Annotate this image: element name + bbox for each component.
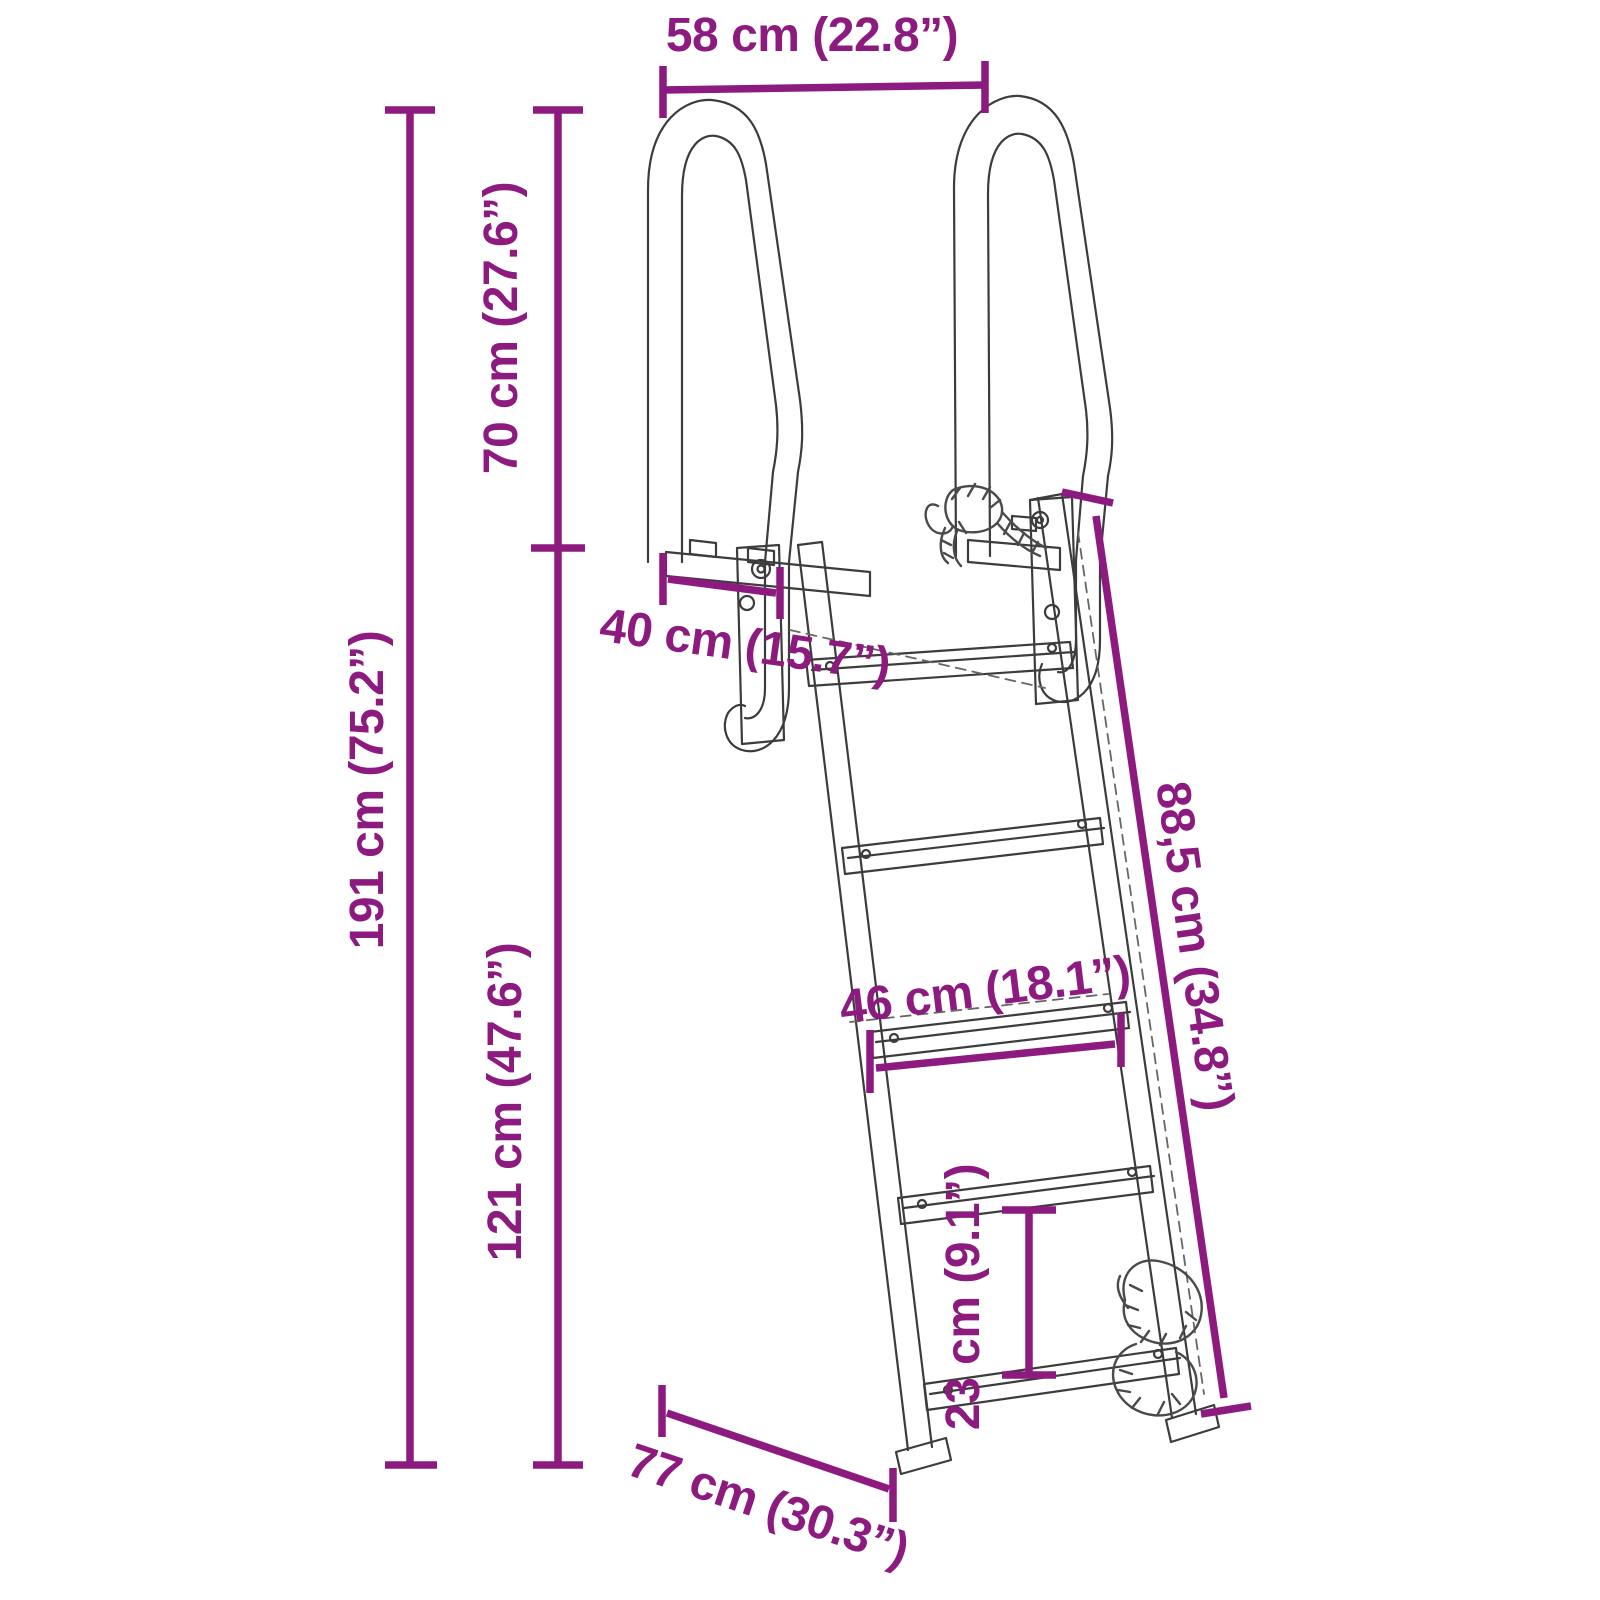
dim-line-handrail-and-lower — [531, 110, 585, 1465]
dim-line-top-width — [663, 61, 985, 118]
dim-label-total-height: 191 cm (75.2”) — [344, 631, 392, 950]
ladder-line-drawing — [0, 0, 1600, 1600]
top-rope — [926, 484, 1046, 566]
bottom-rope — [1113, 1260, 1202, 1415]
dim-label-top-width: 58 cm (22.8”) — [666, 12, 958, 60]
dim-label-step-spacing: 23 cm (9.1”) — [940, 1164, 988, 1430]
dim-label-lower-height: 121 cm (47.6”) — [482, 943, 530, 1262]
left-top-bracket — [666, 540, 870, 596]
step-2 — [842, 818, 1104, 874]
dimension-diagram-canvas: 58 cm (22.8”) 70 cm (27.6”) 191 cm (75.2… — [0, 0, 1600, 1600]
dim-line-step-spacing — [1002, 1210, 1056, 1375]
dim-label-handrail-height: 70 cm (27.6”) — [478, 182, 526, 474]
left-foot — [896, 1438, 951, 1474]
